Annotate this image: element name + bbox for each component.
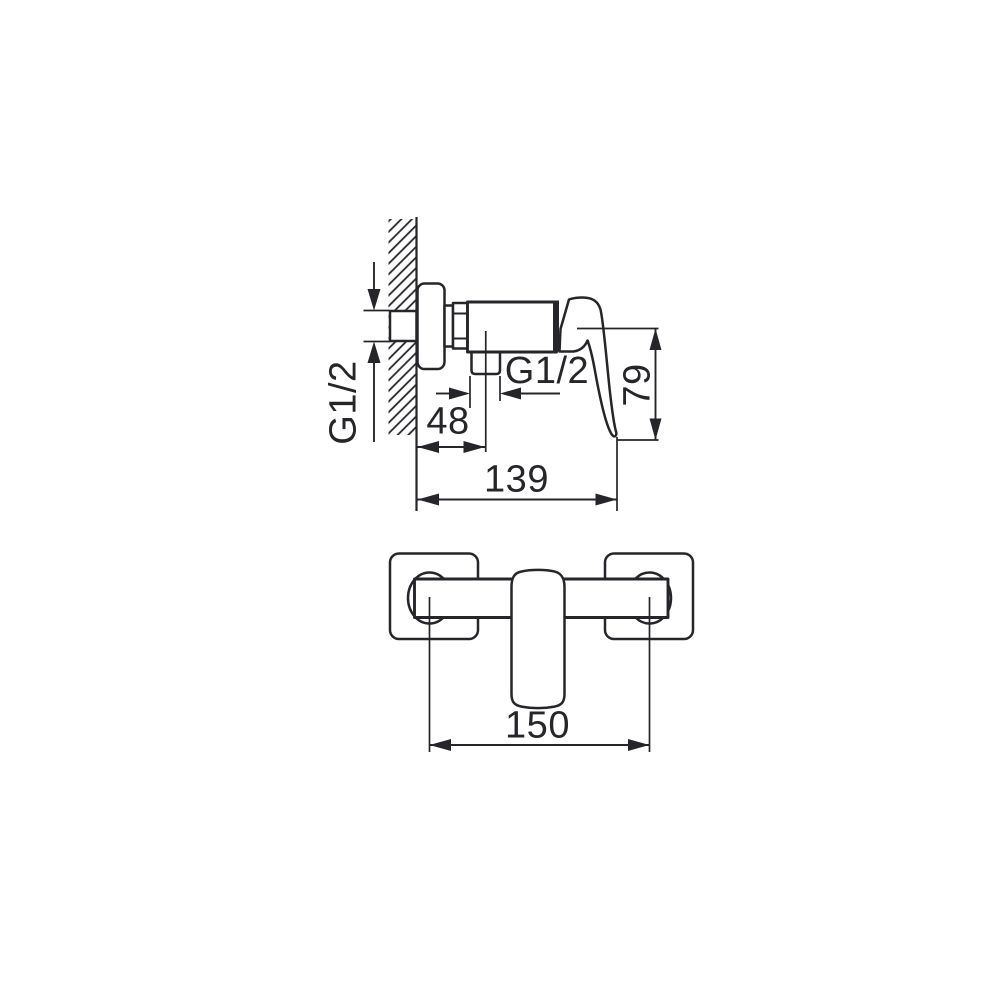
dim-79-arrow-down: [650, 419, 662, 441]
dim-139: 139: [418, 437, 618, 511]
front-view: 150: [390, 554, 693, 753]
technical-drawing-page: G1/2 G1/2 48 139: [0, 0, 1000, 1000]
dim-79-label: 79: [617, 363, 659, 406]
dim-139-arrow-left: [418, 494, 440, 506]
wall-pipe-stub: [390, 311, 417, 341]
dim-48-arrow-left: [418, 441, 440, 453]
dim-150-arrow-right: [628, 739, 650, 751]
dim-outlet-arrow-right: [449, 388, 470, 400]
mixer-body-front: [512, 570, 565, 708]
wall-thread-label: G1/2: [323, 360, 365, 444]
dim-150-arrow-left: [430, 739, 452, 751]
outlet-thread-label: G1/2: [505, 350, 589, 392]
dim-48-label: 48: [426, 401, 469, 443]
connection-nut: [445, 303, 468, 349]
dim-wall-thread-arrow-up: [368, 342, 381, 364]
dim-wall-thread: G1/2: [323, 262, 391, 445]
cartridge-ring: [553, 301, 559, 352]
dim-48: 48: [418, 401, 486, 454]
wall-flange: [418, 284, 445, 370]
dim-150-label: 150: [505, 705, 570, 747]
dim-139-label: 139: [484, 459, 549, 501]
dim-48-arrow-right: [464, 441, 486, 453]
side-view: G1/2 G1/2 48 139: [323, 217, 662, 511]
dim-139-arrow-right: [596, 494, 618, 506]
shower-mixer-technical-drawing: G1/2 G1/2 48 139: [0, 0, 1000, 1000]
dim-wall-thread-arrow-down: [368, 289, 381, 311]
mixer-body-side: [468, 302, 557, 352]
dim-79-arrow-up: [650, 329, 662, 351]
